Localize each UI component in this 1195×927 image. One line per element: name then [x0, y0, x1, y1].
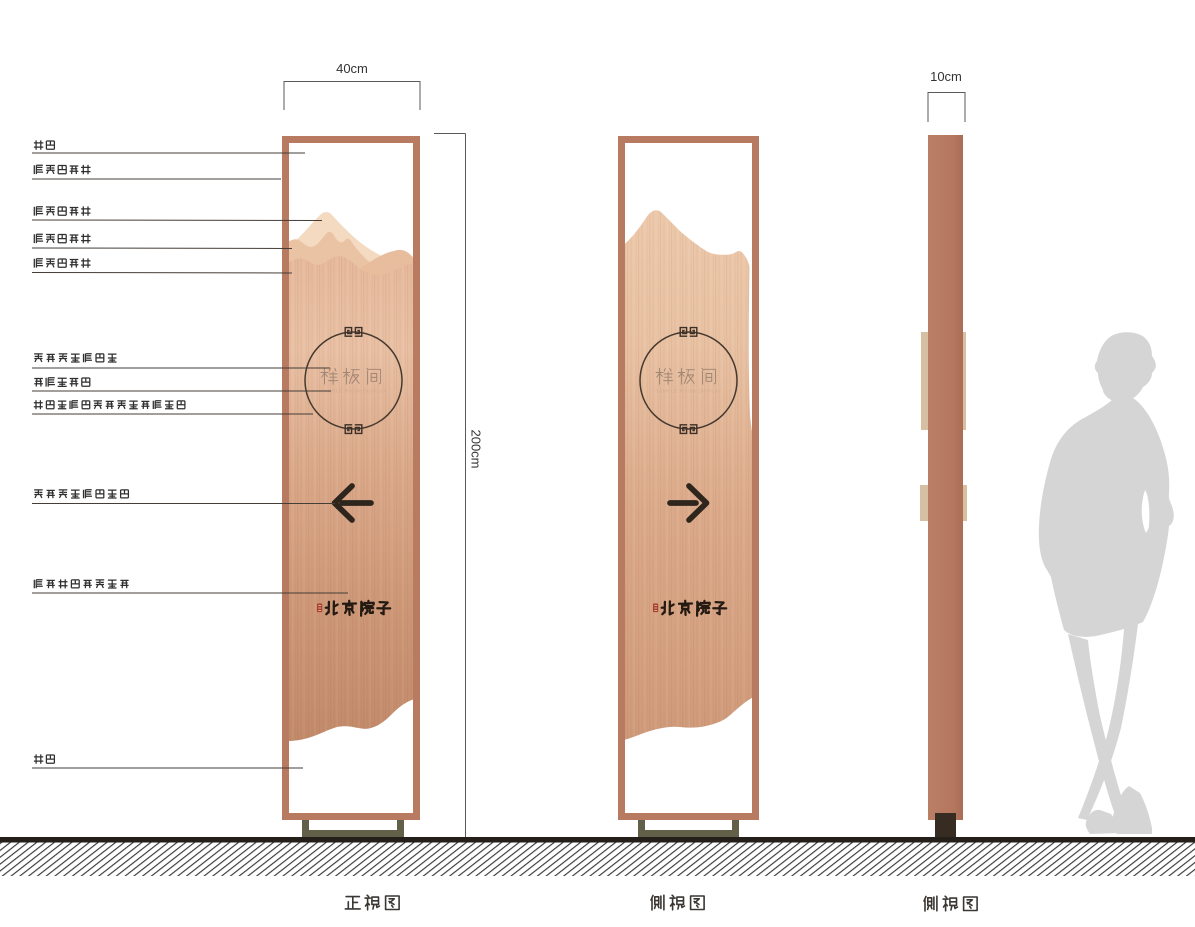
svg-text:200cm: 200cm	[469, 429, 484, 468]
svg-text:40cm: 40cm	[336, 61, 368, 76]
svg-text:10cm: 10cm	[930, 69, 962, 84]
svg-text:SAMPLE ROOM DISPLAY: SAMPLE ROOM DISPLAY	[655, 389, 722, 395]
